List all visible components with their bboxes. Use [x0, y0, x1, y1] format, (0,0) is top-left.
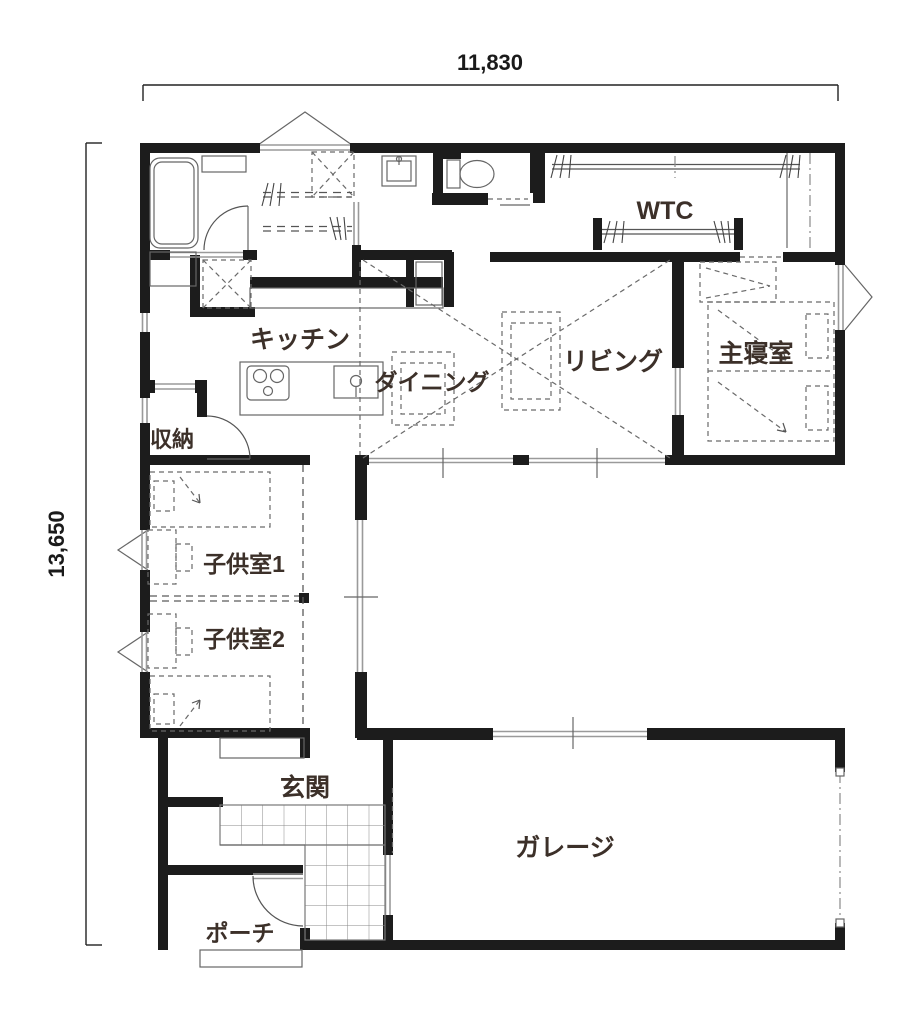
bay-windows: [118, 265, 872, 672]
roof-gable: [252, 112, 358, 153]
bathroom-door: [170, 206, 248, 257]
laundry-sliding-door: [352, 202, 360, 245]
room-label-kids-room-2: 子供室2: [203, 626, 285, 652]
dimension-width-label: 11,830: [457, 50, 523, 75]
master-bedroom-sliding-door: [672, 257, 783, 415]
kitchen-island: [240, 362, 383, 415]
dimension-height-label: 13,650: [44, 510, 69, 577]
floor-plan-svg: 11,830 13,650: [0, 0, 924, 1024]
room-label-kids-room-1: 子供室1: [203, 551, 285, 577]
bathtub-icon: [150, 156, 246, 248]
porch-step: [200, 950, 302, 967]
room-label-storage: 収納: [150, 427, 194, 452]
room-label-kitchen: キッチン: [250, 326, 350, 354]
room-label-dining: ダイニング: [375, 369, 490, 395]
room-label-porch: ポーチ: [206, 920, 275, 946]
kitchen-back-counter: [250, 288, 443, 308]
kids-room-divider: [150, 465, 303, 728]
living-board: [502, 312, 560, 410]
shoe-cabinet: [220, 738, 304, 758]
garage-shutter: [836, 768, 844, 927]
room-label-master-bedroom: 主寝室: [718, 339, 793, 368]
storage-door: [207, 416, 250, 459]
room-label-wtc: WTC: [637, 197, 694, 225]
room-label-garage: ガレージ: [515, 834, 615, 862]
laundry-drying-rods: [262, 183, 352, 240]
interior-walls: [140, 147, 845, 758]
washbasin-icon: [382, 156, 416, 186]
room-label-living: リビング: [563, 348, 663, 376]
hall-closet: [150, 252, 251, 308]
room-label-entrance: 玄関: [280, 773, 330, 802]
skylight: [312, 152, 354, 197]
entrance-door: [253, 874, 303, 926]
floor-plan: 11,830 13,650: [0, 0, 924, 1024]
toilet-door: [488, 199, 530, 205]
toilet-icon: [447, 160, 494, 188]
